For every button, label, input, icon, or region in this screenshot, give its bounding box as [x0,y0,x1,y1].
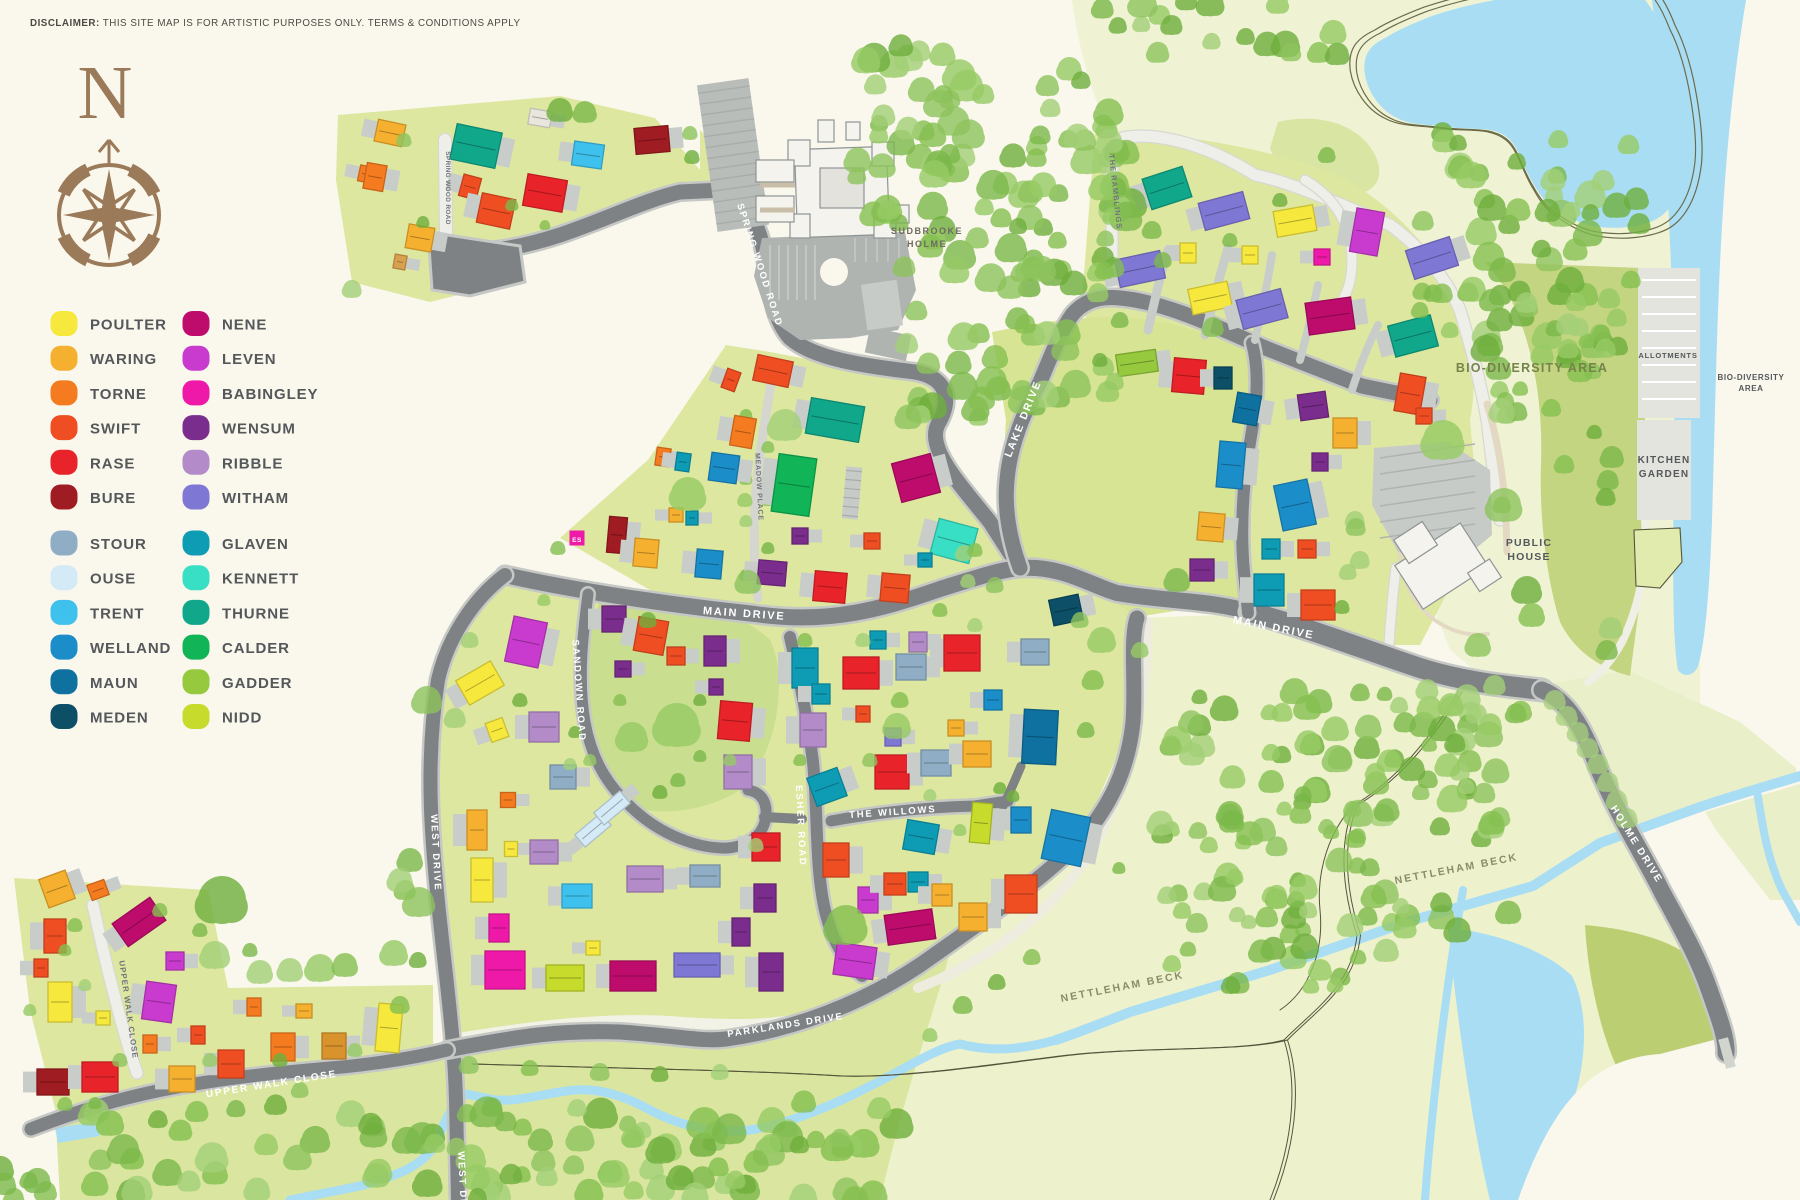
svg-text:LEVEN: LEVEN [222,351,277,368]
svg-text:BABINGLEY: BABINGLEY [222,386,318,403]
svg-text:ALLOTMENTS: ALLOTMENTS [1638,351,1697,360]
svg-text:POULTER: POULTER [90,317,167,334]
svg-text:MEDEN: MEDEN [90,710,149,727]
svg-text:BIO-DIVERSITY: BIO-DIVERSITY [1718,373,1785,382]
svg-text:KENNETT: KENNETT [222,571,299,588]
svg-text:NIDD: NIDD [222,710,262,727]
svg-text:TRENT: TRENT [90,605,145,622]
svg-text:THURNE: THURNE [222,605,290,622]
svg-text:DISCLAIMER: THIS SITE MAP IS F: DISCLAIMER: THIS SITE MAP IS FOR ARTISTI… [30,18,521,29]
svg-text:MAUN: MAUN [90,675,139,692]
svg-text:HOUSE: HOUSE [1507,551,1550,563]
svg-text:GARDEN: GARDEN [1639,469,1690,480]
svg-text:BIO-DIVERSITY AREA: BIO-DIVERSITY AREA [1456,361,1608,375]
svg-text:N: N [78,51,133,135]
svg-text:SUDBROOKE: SUDBROOKE [891,226,963,236]
svg-text:OUSE: OUSE [90,571,136,588]
svg-text:ES: ES [572,537,582,544]
svg-text:WELLAND: WELLAND [90,640,171,657]
svg-text:PUBLIC: PUBLIC [1506,537,1552,549]
svg-text:STOUR: STOUR [90,536,147,553]
svg-text:GADDER: GADDER [222,675,292,692]
svg-text:WITHAM: WITHAM [222,490,289,507]
svg-text:WENSUM: WENSUM [222,421,296,438]
svg-text:HOLME: HOLME [907,239,947,249]
svg-text:GLAVEN: GLAVEN [222,536,289,553]
svg-text:NENE: NENE [222,317,267,334]
svg-text:CALDER: CALDER [222,640,290,657]
svg-text:SPRING WOOD ROAD: SPRING WOOD ROAD [444,151,451,224]
svg-text:SWIFT: SWIFT [90,421,141,438]
svg-text:RASE: RASE [90,455,135,472]
svg-text:TORNE: TORNE [90,386,147,403]
svg-text:AREA: AREA [1738,384,1763,393]
svg-text:KITCHEN: KITCHEN [1638,455,1691,466]
svg-text:RIBBLE: RIBBLE [222,455,283,472]
svg-text:WARING: WARING [90,351,157,368]
svg-text:BURE: BURE [90,490,136,507]
